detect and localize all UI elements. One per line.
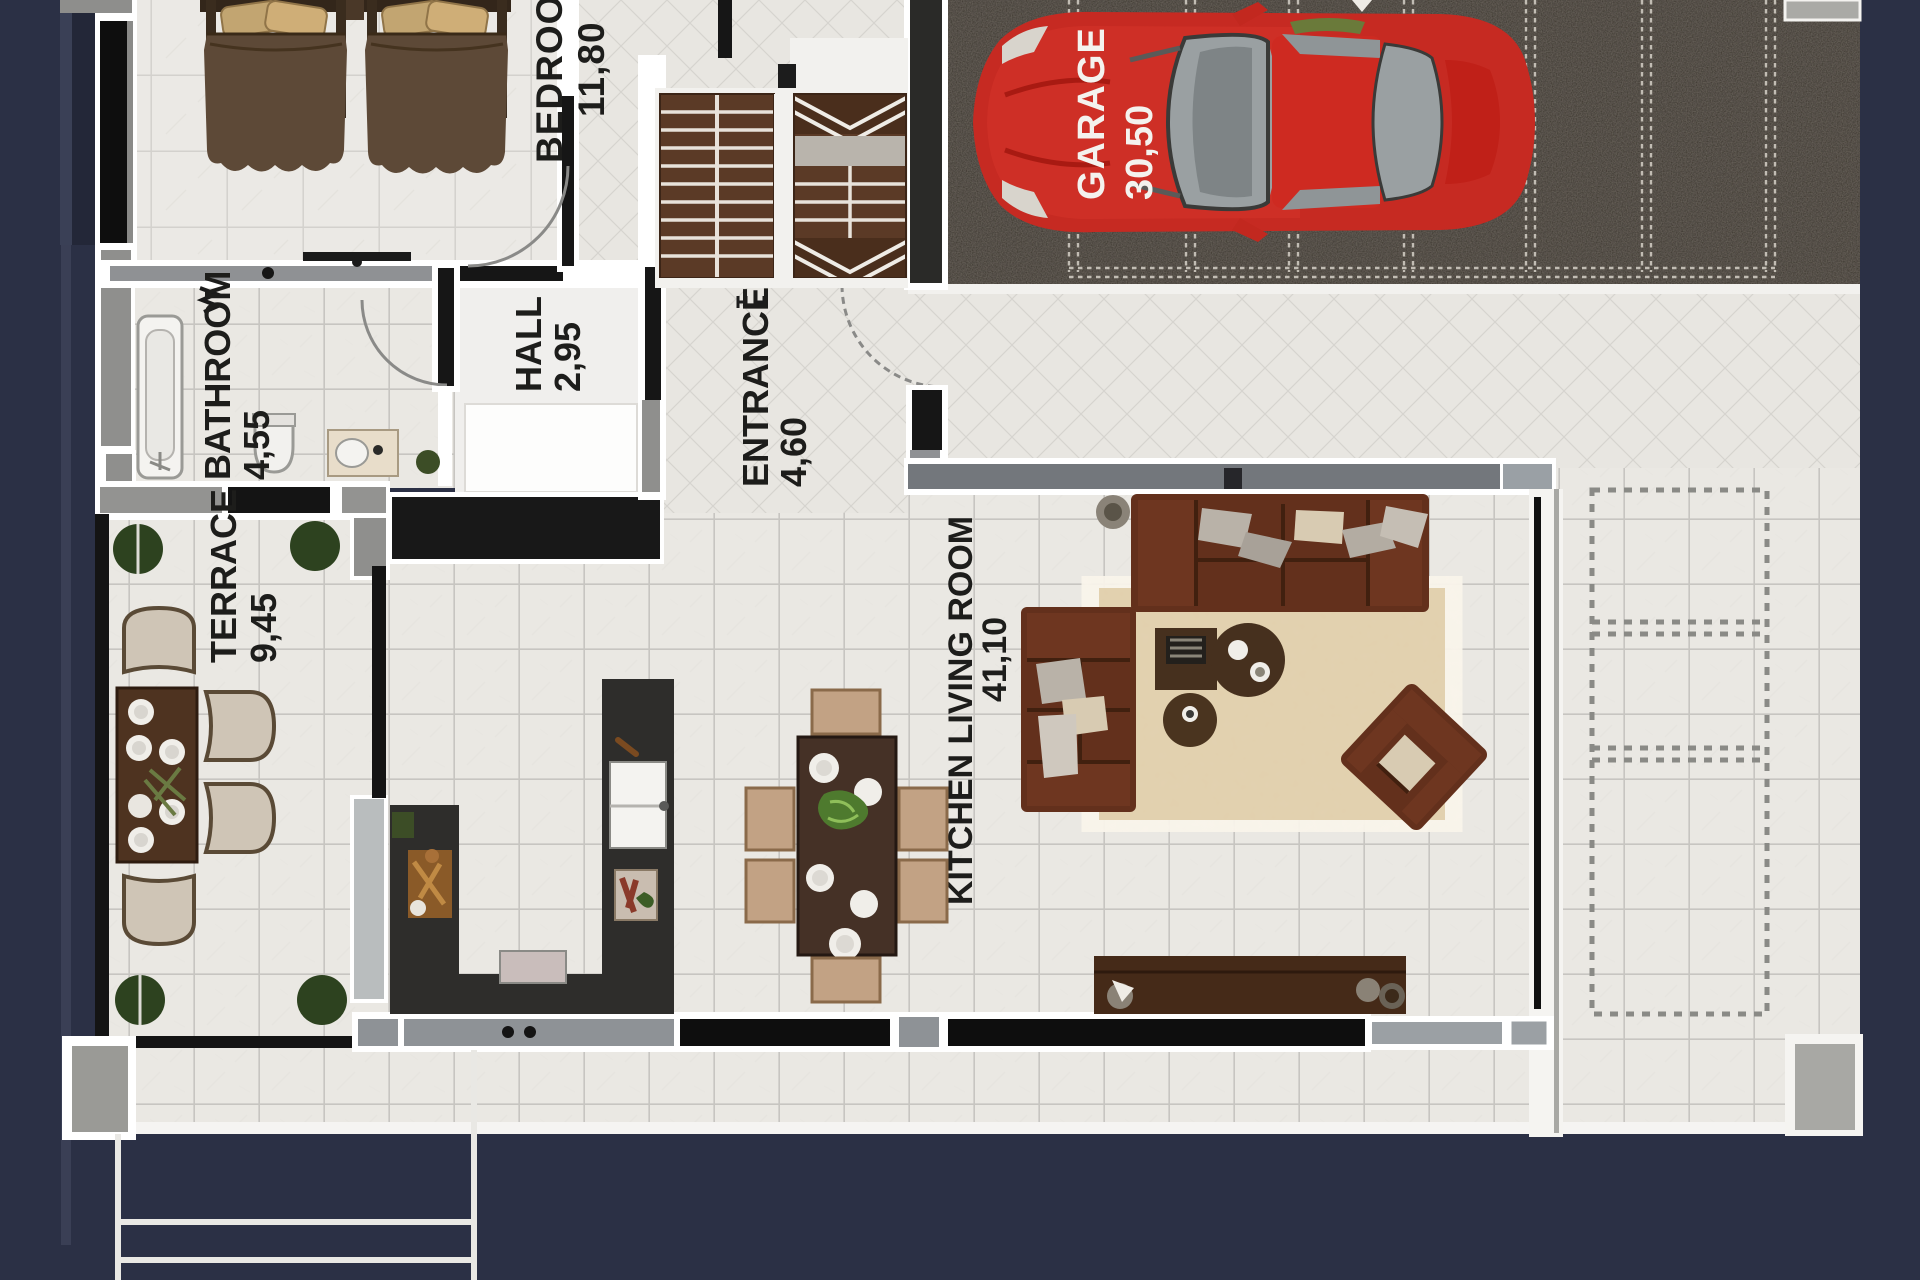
svg-text:TERRACE: TERRACE <box>203 489 244 663</box>
svg-text:4,55: 4,55 <box>236 410 277 480</box>
svg-text:HALL: HALL <box>508 296 549 392</box>
svg-text:41,10: 41,10 <box>976 617 1014 702</box>
svg-text:GARAGE: GARAGE <box>1071 27 1113 200</box>
svg-text:30,50: 30,50 <box>1119 105 1161 200</box>
svg-text:2,95: 2,95 <box>547 322 588 392</box>
svg-text:KITCHEN LIVING ROOM: KITCHEN LIVING ROOM <box>942 516 980 905</box>
svg-text:BATHROOM: BATHROOM <box>197 271 238 480</box>
svg-text:9,45: 9,45 <box>243 593 284 663</box>
svg-text:4,60: 4,60 <box>773 417 814 487</box>
svg-text:11,80: 11,80 <box>571 21 612 117</box>
svg-text:BEDROOM: BEDROOM <box>529 0 570 163</box>
svg-text:ENTRANCE: ENTRANCE <box>735 287 776 487</box>
